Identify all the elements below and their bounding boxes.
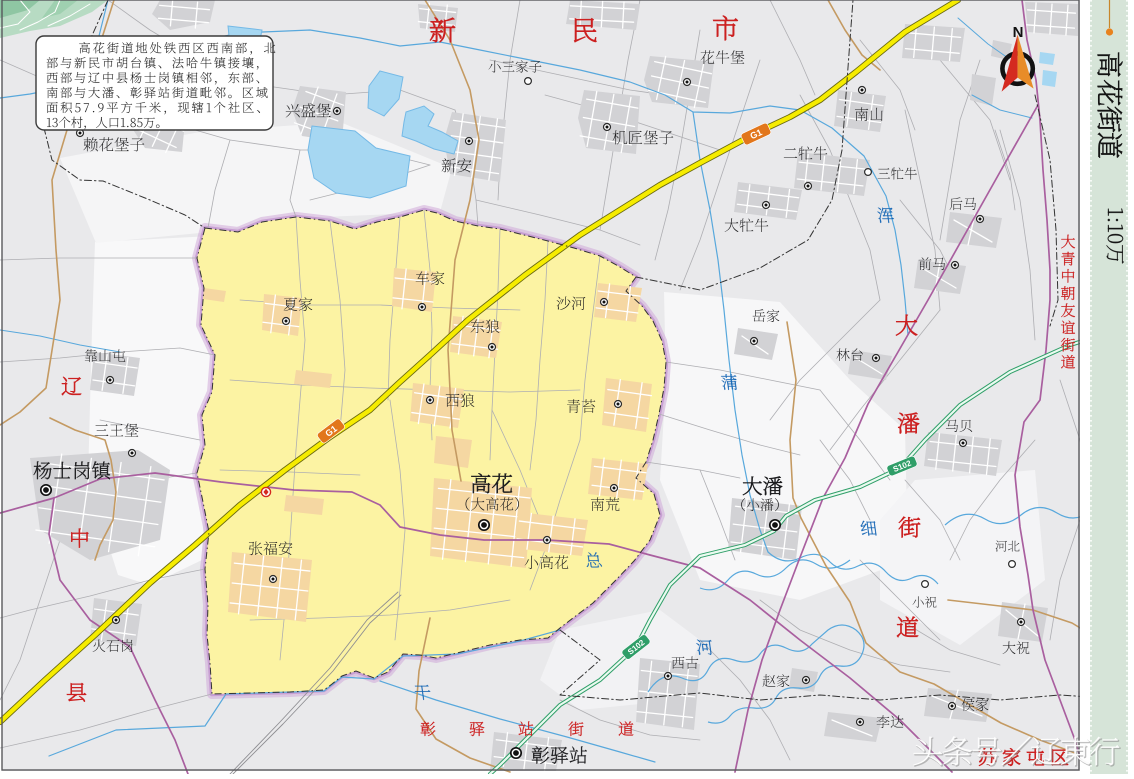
svg-text:N: N [1013,24,1024,41]
